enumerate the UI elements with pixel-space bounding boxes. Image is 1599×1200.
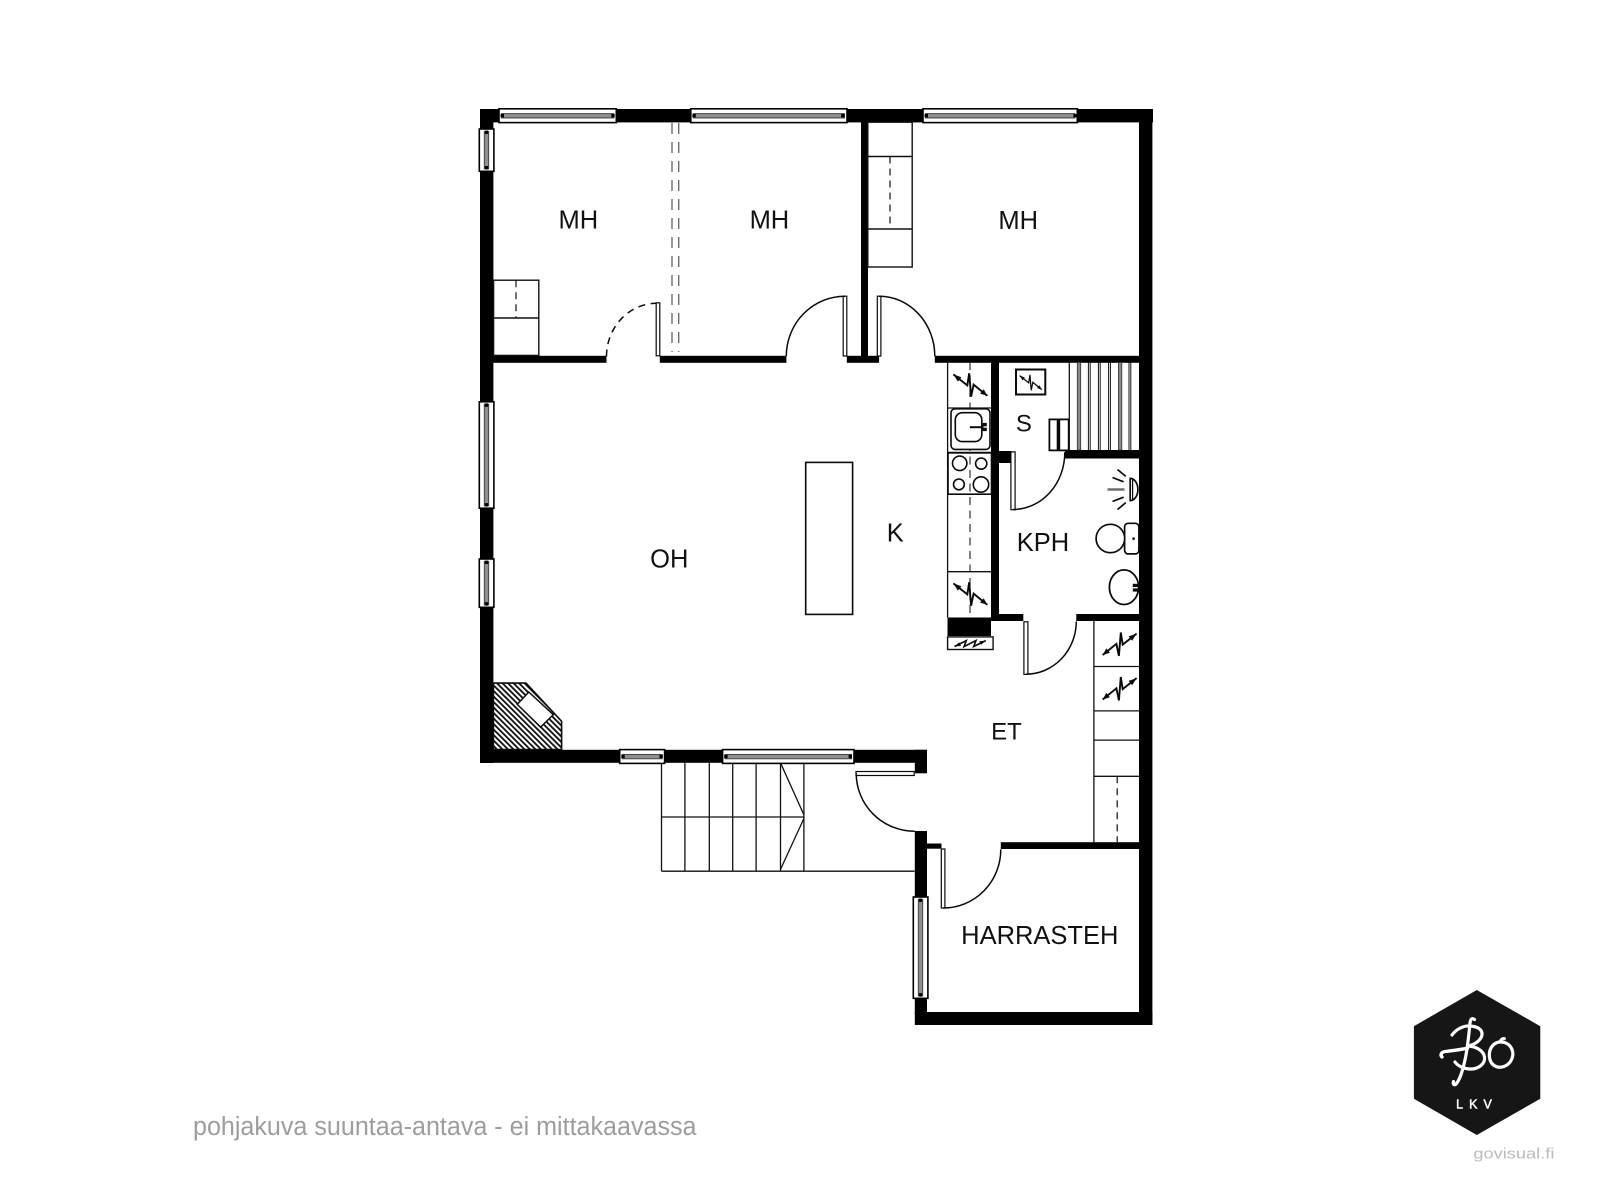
svg-text:K: K [887,520,904,548]
svg-text:KPH: KPH [1017,529,1069,557]
svg-text:MH: MH [558,206,598,234]
svg-text:MH: MH [750,206,790,234]
svg-text:HARRASTEH: HARRASTEH [961,922,1118,950]
svg-text:pohjakuva suuntaa-antava - ei: pohjakuva suuntaa-antava - ei mittakaava… [193,1113,697,1141]
svg-text:ET: ET [991,719,1022,746]
svg-text:LKV: LKV [1456,1098,1498,1112]
svg-text:S: S [1016,411,1032,438]
svg-text:OH: OH [650,545,688,573]
svg-text:MH: MH [998,207,1038,235]
svg-text:govisual.fi: govisual.fi [1473,1147,1554,1163]
